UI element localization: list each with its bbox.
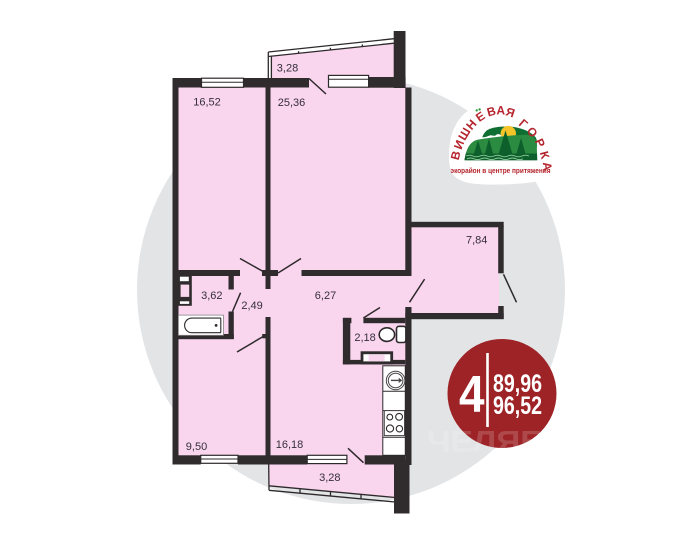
- svg-text:16,18: 16,18: [276, 439, 304, 451]
- svg-text:2,49: 2,49: [241, 300, 262, 312]
- svg-text:96,52: 96,52: [493, 392, 542, 420]
- svg-text:2,18: 2,18: [354, 332, 375, 344]
- svg-text:25,36: 25,36: [278, 97, 306, 109]
- svg-text:4: 4: [459, 366, 485, 424]
- svg-text:9,50: 9,50: [186, 441, 207, 453]
- svg-text:3,28: 3,28: [277, 63, 298, 75]
- svg-text:экорайон в центре притяжения: экорайон в центре притяжения: [451, 166, 551, 175]
- svg-text:3,62: 3,62: [201, 290, 222, 302]
- svg-text:3,28: 3,28: [319, 472, 340, 484]
- svg-text:6,27: 6,27: [315, 290, 336, 302]
- svg-text:ЧЕЛЯБИНСК: ЧЕЛЯБИНСК: [427, 426, 638, 459]
- svg-text:16,52: 16,52: [193, 97, 221, 109]
- svg-text:7,84: 7,84: [466, 235, 487, 247]
